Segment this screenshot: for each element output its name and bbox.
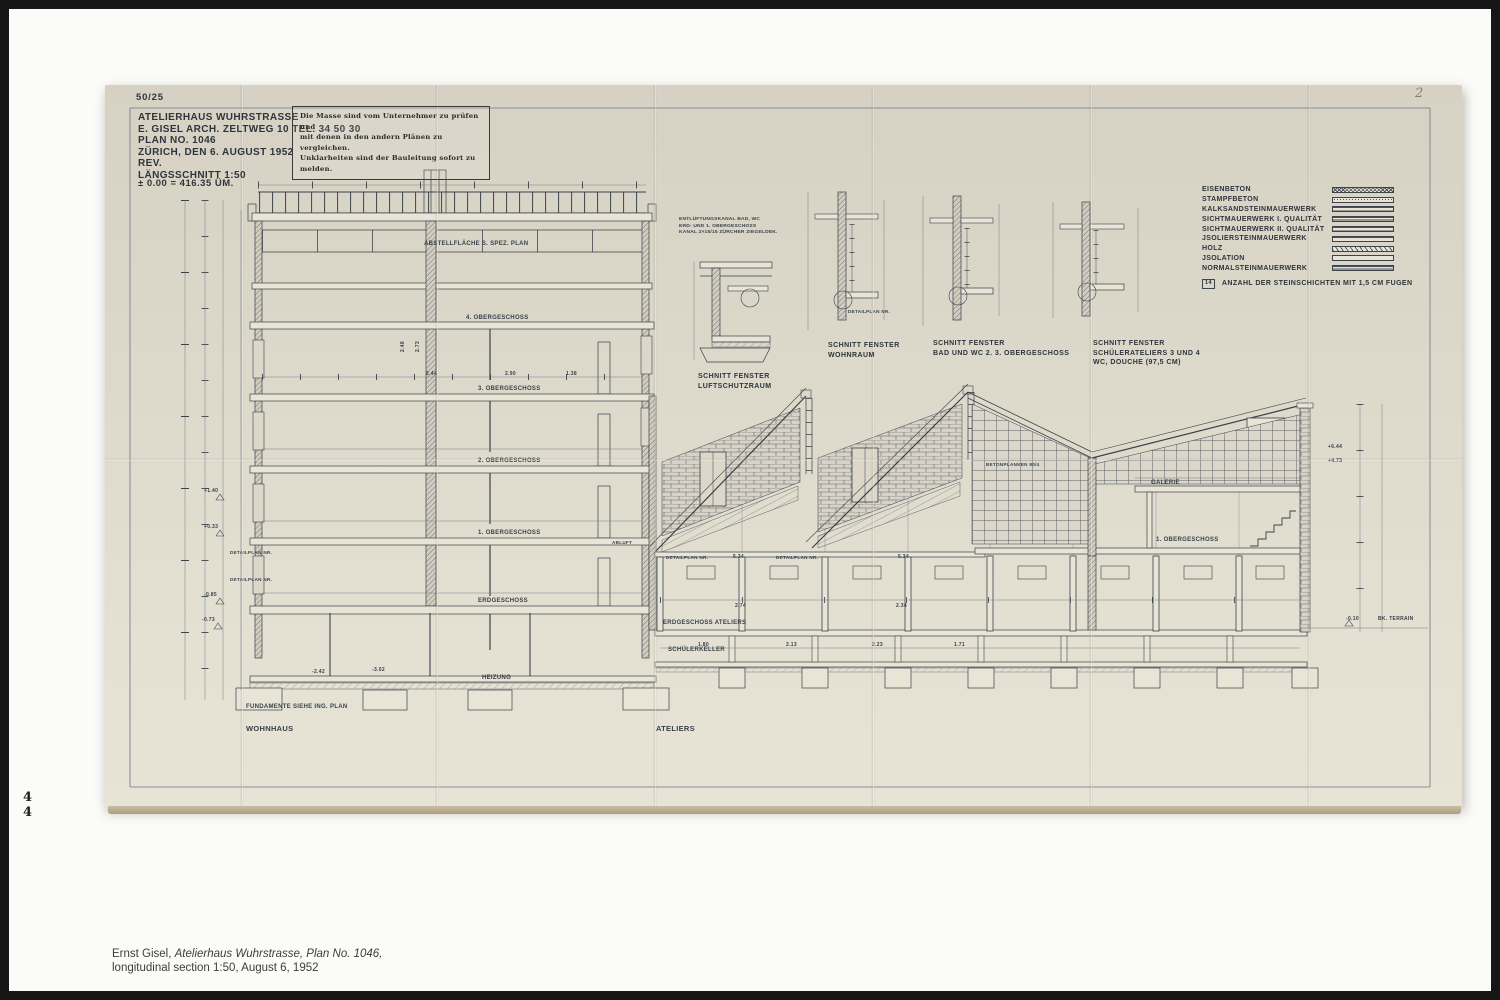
drawing-text: DETAILPLAN NR. (230, 577, 272, 582)
detail-subtitle: LUFTSCHUTZRAUM (698, 382, 772, 392)
detail-subtitle: SCHÜLERATELIERS 3 UND 4 (1093, 349, 1200, 359)
fold-crease (1089, 85, 1093, 807)
legend-label: NORMALSTEINMAUERWERK (1202, 265, 1332, 272)
vent-duct-note: ENTLÜFTUNGSKANAL BAD, WC ERD- UND 1. OBE… (679, 217, 778, 237)
legend-row: EISENBETON (1202, 185, 1394, 195)
drawing-text: -2.42 (312, 669, 325, 675)
drawing-text: -0.73 (202, 617, 215, 623)
legend-swatch-diag (1332, 246, 1394, 252)
stone-course-badge: 14 (1202, 279, 1215, 289)
detail-subtitle: WC, DOUCHE (97,5 CM) (1093, 358, 1200, 368)
drawing-text: 1.38 (566, 371, 577, 377)
drawing-text: 5.34 (733, 554, 744, 560)
legend-row: SICHTMAUERWERK II. QUALITÄT (1202, 224, 1394, 234)
legend-row: HOLZ (1202, 244, 1394, 254)
legend-swatch-h2 (1332, 216, 1394, 222)
legend-label: EISENBETON (1202, 186, 1332, 193)
legend-swatch-blank (1332, 255, 1394, 261)
stamp-line: mit denen in den andern Plänen zu vergle… (300, 132, 482, 153)
drawing-text: +6.44 (1328, 444, 1342, 450)
drawing-text: DETAILPLAN NR. (230, 550, 272, 555)
contractor-stamp: Die Masse sind vom Unternehmer zu prüfen… (292, 106, 490, 180)
detail-title: SCHNITT FENSTER (828, 341, 900, 351)
legend-row: STAMPFBETON (1202, 195, 1394, 205)
fold-crease-horizontal (105, 458, 1462, 461)
wohnhaus-section (214, 170, 669, 710)
drawing-text: 1. OBERGESCHOSS (478, 530, 541, 536)
legend-row: JSOLATION (1202, 254, 1394, 264)
drawing-text: SCHÜLERKELLER (668, 646, 725, 653)
detail-subtitle: BAD UND WC 2. 3. OBERGESCHOSS (933, 349, 1069, 359)
drawing-text: 1.71 (954, 642, 965, 648)
drawing-text: BETONPLANKEN 80/4 (986, 462, 1040, 467)
drawing-text: HEIZUNG (482, 675, 511, 681)
drawing-text: +0.33 (204, 524, 218, 530)
datum-line: ± 0.00 = 416.35 ÜM. (138, 178, 234, 189)
legend-swatch-cross (1332, 187, 1394, 193)
drawing-text: ABSTELLFLÄCHE S. SPEZ. PLAN (424, 240, 528, 247)
drawing-text: -3.02 (372, 667, 385, 673)
drawing-text: WOHNHAUS (246, 724, 293, 733)
drawing-text: ABLUFT (612, 540, 632, 545)
legend-label: SICHTMAUERWERK I. QUALITÄT (1202, 216, 1332, 223)
legend-swatch-h3 (1332, 226, 1394, 232)
drawing-text: DETAILPLAN NR. (666, 555, 708, 560)
legend-row: NORMALSTEINMAUERWERK (1202, 263, 1394, 273)
legend-swatch-h4 (1332, 236, 1394, 242)
legend-label: HOLZ (1202, 245, 1332, 252)
drawing-text: 4. OBERGESCHOSS (466, 315, 529, 321)
legend-label: JSOLIERSTEINMAUERWERK (1202, 235, 1332, 242)
drawing-text: -0.10 (1346, 616, 1359, 622)
fold-crease (240, 85, 244, 807)
detail-title: SCHNITT FENSTER (933, 339, 1069, 349)
detail-label-schuelerateliers: SCHNITT FENSTER SCHÜLERATELIERS 3 UND 4 … (1093, 339, 1200, 368)
book-page: 4 4 (0, 0, 1500, 1000)
drawing-text: 1. OBERGESCHOSS (1156, 537, 1219, 543)
drawing-text: 2.34 (896, 603, 907, 609)
drawing-text: 2.90 (505, 371, 516, 377)
stamp-line: Unklarheiten sind der Bauleitung sofort … (300, 153, 482, 174)
caption-line-1: Ernst Gisel, Atelierhaus Wuhrstrasse, Pl… (112, 948, 382, 962)
drawing-text: 3. OBERGESCHOSS (478, 386, 541, 392)
detail-label-luftschutzraum: SCHNITT FENSTER LUFTSCHUTZRAUM (698, 372, 772, 391)
drawing-text: 2.13 (786, 642, 797, 648)
drawing-text: 2.48 (400, 341, 406, 352)
detail-label-wohnraum: SCHNITT FENSTER WOHNRAUM (828, 341, 900, 360)
detail-title: SCHNITT FENSTER (1093, 339, 1200, 349)
detail-title: SCHNITT FENSTER (698, 372, 772, 382)
drawing-text: ATELIERS (656, 724, 695, 733)
legend-row: KALKSANDSTEINMAUERWERK (1202, 205, 1394, 215)
legend-note: 14 ANZAHL DER STEINSCHICHTEN MIT 1,5 CM … (1202, 279, 1412, 289)
legend-swatch-h3 (1332, 206, 1394, 212)
drawing-text: FUNDAMENTE SIEHE ING. PLAN (246, 704, 347, 710)
fold-crease (871, 85, 875, 807)
page-number: 4 (23, 805, 32, 820)
drawing-text: 2.74 (735, 603, 746, 609)
caption-line-2: longitudinal section 1:50, August 6, 195… (112, 962, 382, 976)
detail-label-bad-wc: SCHNITT FENSTER BAD UND WC 2. 3. OBERGES… (933, 339, 1069, 358)
drawing-text: +1.40 (204, 488, 218, 494)
ateliers-section (649, 384, 1428, 688)
note-line: ENTLÜFTUNGSKANAL BAD, WC (679, 217, 778, 224)
drawing-text: BK. TERRAIN (1378, 616, 1414, 622)
archive-number: 50/25 (136, 92, 164, 103)
caption-work-title: Atelierhaus Wuhrstrasse, Plan No. 1046, (175, 948, 383, 960)
stamp-line: Die Masse sind vom Unternehmer zu prüfen… (300, 111, 482, 132)
fold-crease (653, 85, 657, 807)
drawing-text: GALERIE (1151, 480, 1180, 486)
detail-subtitle: WOHNRAUM (828, 351, 900, 361)
drawing-text: 1.80 (698, 642, 709, 648)
page-number: 4 (23, 790, 32, 805)
drawing-text: 5.34 (898, 554, 909, 560)
legend-label: SICHTMAUERWERK II. QUALITÄT (1202, 226, 1332, 233)
note-line: KANAL 2×15/15 ZÜRCHER ZIEGELDEK. (679, 230, 778, 237)
drawing-text: 2.73 (415, 341, 421, 352)
legend-label: STAMPFBETON (1202, 196, 1332, 203)
legend-row: SICHTMAUERWERK I. QUALITÄT (1202, 214, 1394, 224)
legend-label: KALKSANDSTEINMAUERWERK (1202, 206, 1332, 213)
legend-swatch-h2 (1332, 265, 1394, 271)
material-legend: EISENBETONSTAMPFBETONKALKSANDSTEINMAUERW… (1202, 185, 1394, 273)
drawing-text: DETAILPLAN NR. (776, 555, 818, 560)
drawing-text: DETAILPLAN NR. (848, 309, 890, 314)
drawing-text: -0.85 (204, 592, 217, 598)
legend-swatch-stipple (1332, 197, 1394, 203)
pencil-corner-mark: 2 (1415, 86, 1423, 101)
legend-label: JSOLATION (1202, 255, 1332, 262)
drawing-text: ERDGESCHOSS (478, 598, 528, 604)
fold-crease (435, 85, 439, 807)
legend-row: JSOLIERSTEINMAUERWERK (1202, 234, 1394, 244)
legend-note-text: ANZAHL DER STEINSCHICHTEN MIT 1,5 CM FUG… (1222, 280, 1413, 287)
caption-author: Ernst Gisel, (112, 948, 175, 960)
book-caption: Ernst Gisel, Atelierhaus Wuhrstrasse, Pl… (112, 948, 382, 975)
blueprint-sheet: ABSTELLFLÄCHE S. SPEZ. PLAN4. OBERGESCHO… (105, 85, 1462, 807)
drawing-text: ERDGESCHOSS ATELIERS (663, 620, 746, 626)
